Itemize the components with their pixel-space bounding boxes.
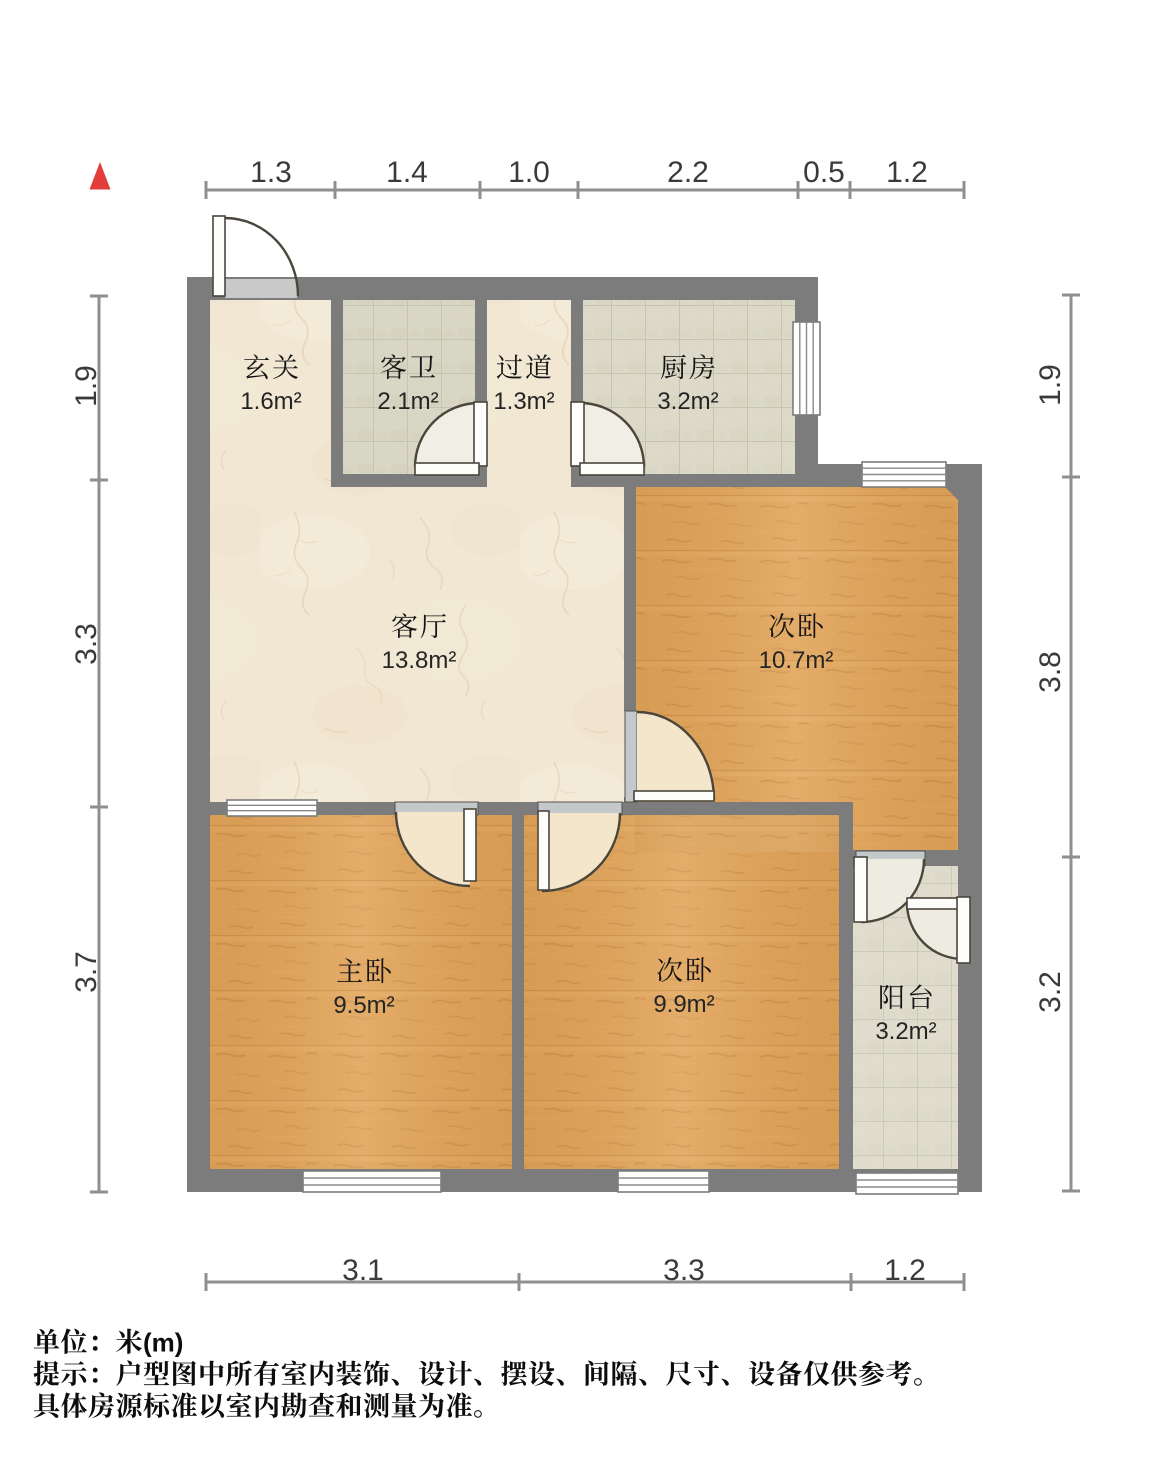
svg-text:1.9: 1.9 (1034, 364, 1067, 406)
svg-text:3.2m²: 3.2m² (875, 1018, 936, 1045)
svg-text:3.2: 3.2 (1034, 971, 1067, 1013)
svg-text:3.1: 3.1 (342, 1254, 384, 1287)
svg-text:3.7: 3.7 (70, 951, 103, 993)
svg-text:9.9m²: 9.9m² (653, 991, 714, 1018)
svg-text:1.3m²: 1.3m² (493, 388, 554, 415)
svg-text:2.1m²: 2.1m² (377, 388, 438, 415)
svg-text:3.3: 3.3 (663, 1254, 705, 1287)
svg-text:0.5: 0.5 (803, 156, 845, 189)
svg-text:1.2: 1.2 (884, 1254, 926, 1287)
svg-text:1.6m²: 1.6m² (240, 388, 301, 415)
svg-text:3.2m²: 3.2m² (657, 388, 718, 415)
svg-text:1.2: 1.2 (886, 156, 928, 189)
svg-text:1.9: 1.9 (70, 365, 103, 407)
svg-text:3.3: 3.3 (70, 623, 103, 665)
svg-text:1.3: 1.3 (250, 156, 292, 189)
svg-text:13.8m²: 13.8m² (382, 647, 457, 674)
svg-text:9.5m²: 9.5m² (333, 992, 394, 1019)
svg-text:1.0: 1.0 (508, 156, 550, 189)
svg-text:1.4: 1.4 (386, 156, 428, 189)
svg-text:2.2: 2.2 (667, 156, 709, 189)
svg-text:(m): (m) (143, 1328, 183, 1358)
svg-text:10.7m²: 10.7m² (759, 647, 834, 674)
svg-text:3.8: 3.8 (1034, 651, 1067, 693)
